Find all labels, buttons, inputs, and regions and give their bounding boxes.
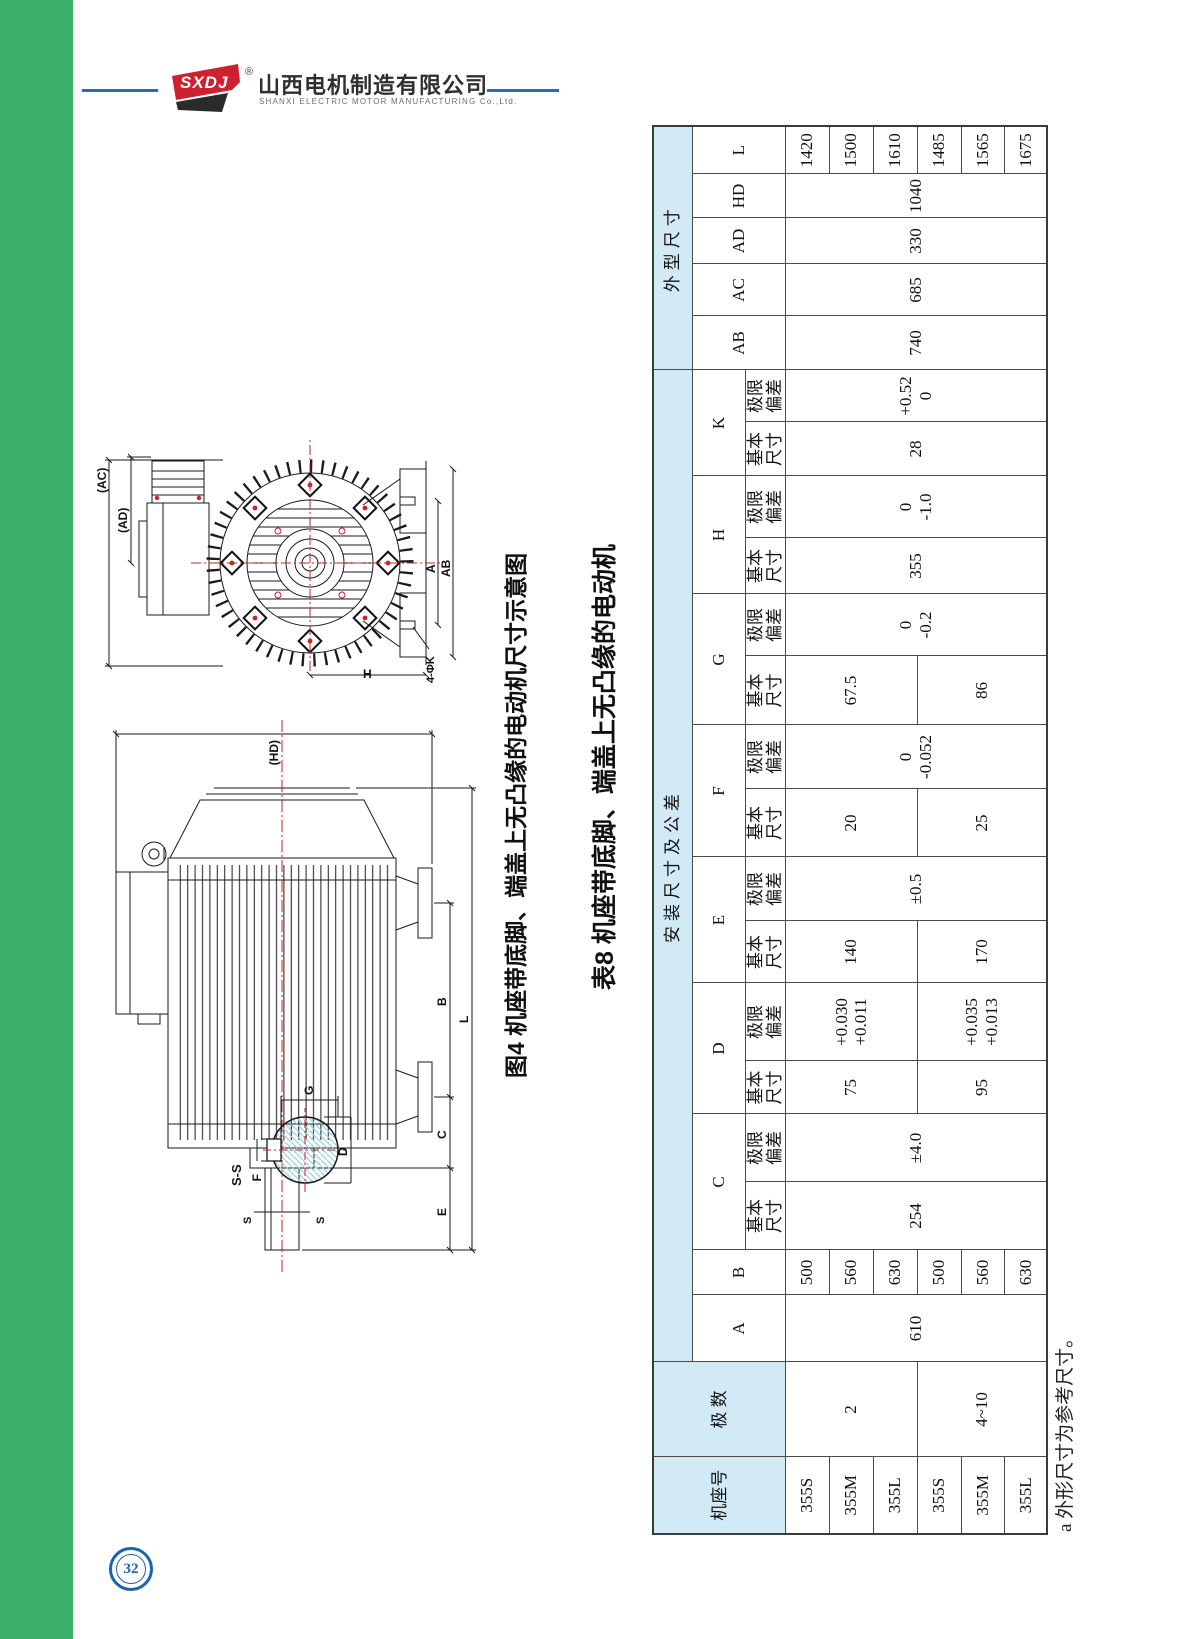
- dim-label-a: A: [424, 564, 438, 573]
- dim-label-c: C: [435, 1130, 449, 1139]
- dim-label-h: H: [363, 667, 372, 681]
- table-note: a 外形尺寸为参考尺寸。: [1050, 1270, 1084, 1532]
- company-logo-icon: SXDJ: [166, 60, 246, 118]
- dev-subheader: 极限偏差: [746, 371, 785, 422]
- letter-header-E: E: [692, 857, 745, 983]
- install-group-header: 安装尺寸及公差: [653, 370, 692, 1362]
- letter-header-A: A: [692, 1295, 785, 1362]
- basic-subheader: 基本尺寸: [746, 1183, 785, 1250]
- dim-label-hd: (HD): [267, 740, 281, 765]
- letter-header-AB: AB: [692, 316, 785, 370]
- dim-label-b: B: [435, 997, 449, 1006]
- dev-subheader: 极限偏差: [746, 1115, 785, 1182]
- basic-subheader: 基本尺寸: [746, 1062, 785, 1114]
- figure-caption-block: 图4 机座带底脚、端盖上无凸缘的电动机尺寸示意图: [497, 430, 537, 1078]
- basic-subheader: 基本尺寸: [746, 539, 785, 594]
- letter-header-B: B: [692, 1250, 785, 1295]
- table-row: 355S 2 610 500 254 ±4.0 75 +0.030+0.011 …: [785, 126, 829, 1534]
- letter-header-G: G: [692, 594, 745, 725]
- logo-text: SXDJ: [180, 73, 228, 92]
- header-rule-left: [82, 89, 158, 92]
- table-note-block: a 外形尺寸为参考尺寸。: [1050, 1270, 1084, 1532]
- dim-label-f: F: [250, 1174, 264, 1181]
- dim-label-4phik: 4-ΦK: [425, 656, 437, 683]
- dim-label-ab: AB: [439, 559, 453, 577]
- letter-header-F: F: [692, 725, 745, 857]
- basic-subheader: 基本尺寸: [746, 657, 785, 725]
- dev-subheader: 极限偏差: [746, 595, 785, 656]
- page-number: 32: [116, 1554, 146, 1584]
- page-spine: [0, 0, 73, 1639]
- letter-header-D: D: [692, 983, 745, 1114]
- section-title: S-S: [229, 1164, 244, 1186]
- frame-col-header: 机座号: [653, 1457, 785, 1534]
- section-mark-bottom: S: [315, 1217, 327, 1224]
- letter-header-L: L: [692, 126, 785, 174]
- dev-subheader: 极限偏差: [746, 726, 785, 789]
- letter-header-K: K: [692, 370, 745, 476]
- basic-subheader: 基本尺寸: [746, 423, 785, 476]
- header-rule-right: [487, 89, 559, 92]
- section-mark-top: S: [242, 1217, 254, 1224]
- dim-label-ad: (AD): [116, 508, 130, 533]
- letter-header-AD: AD: [692, 218, 785, 264]
- dim-label-e: E: [435, 1208, 449, 1216]
- letter-header-H: H: [692, 476, 745, 594]
- basic-subheader: 基本尺寸: [746, 922, 785, 983]
- spec-table-block: 机座号 极 数 安装尺寸及公差 外型尺寸 A B C D E F G H K A…: [652, 127, 1042, 1535]
- dim-label-l: L: [457, 1016, 471, 1023]
- basic-subheader: 基本尺寸: [746, 790, 785, 857]
- catalog-page: { "page": { "number": "32" }, "header": …: [0, 0, 1200, 1639]
- letter-header-HD: HD: [692, 174, 785, 218]
- dev-subheader: 极限偏差: [746, 477, 785, 538]
- letter-header-AC: AC: [692, 264, 785, 316]
- poles-col-header: 极 数: [653, 1362, 785, 1457]
- dim-label-d: D: [336, 1147, 350, 1156]
- spec-table: 机座号 极 数 安装尺寸及公差 外型尺寸 A B C D E F G H K A…: [652, 125, 1048, 1535]
- table-caption-block: 表8 机座带底脚、端盖上无凸缘的电动机: [585, 596, 629, 990]
- dev-subheader: 极限偏差: [746, 984, 785, 1061]
- company-name-cn: 山西电机制造有限公司: [258, 68, 488, 100]
- company-name-en: SHANXI ELECTRIC MOTOR MANUFACTURING Co.,…: [259, 97, 517, 106]
- figure-shaft-section: S-S F G D: [225, 1052, 360, 1202]
- outline-group-header: 外型尺寸: [653, 126, 692, 370]
- letter-header-C: C: [692, 1114, 745, 1250]
- figure-side-view: S S (HD) E C B: [110, 698, 482, 1320]
- dim-label-g: G: [302, 1086, 316, 1095]
- figure-end-view: (AC) (AD): [95, 425, 460, 685]
- registered-mark: ®: [245, 66, 253, 78]
- dev-subheader: 极限偏差: [746, 858, 785, 921]
- figure-caption: 图4 机座带底脚、端盖上无凸缘的电动机尺寸示意图: [497, 430, 537, 1078]
- dim-label-ac: (AC): [95, 468, 109, 493]
- table-caption: 表8 机座带底脚、端盖上无凸缘的电动机: [585, 596, 629, 990]
- page-number-badge: 32: [109, 1547, 153, 1591]
